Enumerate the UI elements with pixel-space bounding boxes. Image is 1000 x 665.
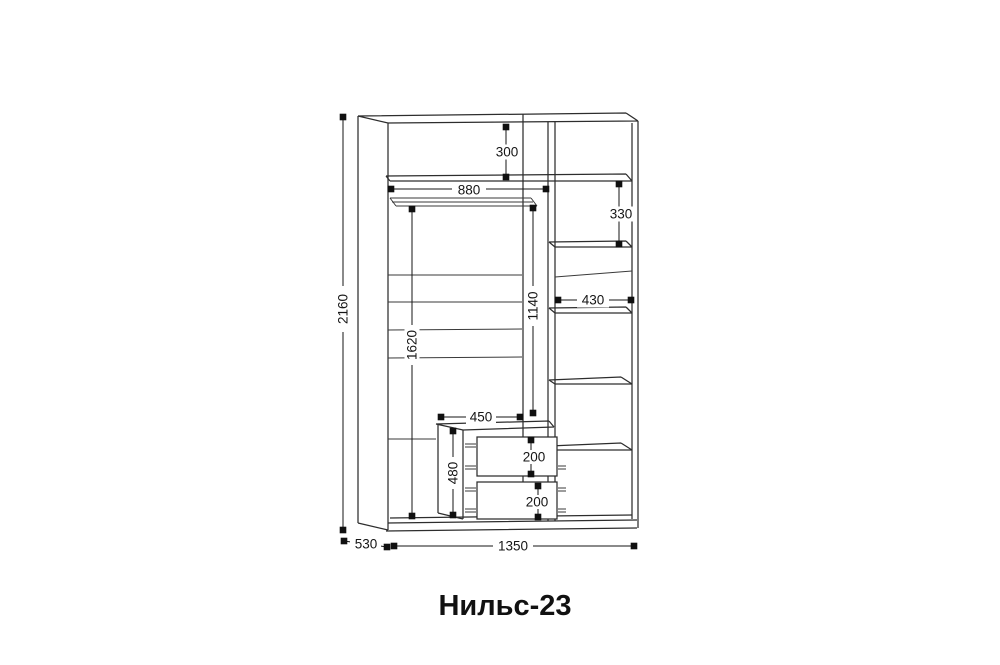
dimension-marker: [517, 414, 524, 421]
dimension-marker: [384, 544, 391, 551]
dim-overall-width: 1350: [391, 539, 638, 554]
dim-drawer-unit-height: 480: [446, 428, 461, 519]
dimension-marker: [530, 410, 537, 417]
dim-rod-to-drawer-height: 1140: [526, 205, 541, 417]
dimension-label: 880: [458, 183, 481, 198]
dimension-label: 330: [610, 207, 633, 222]
dimension-label: 450: [470, 410, 493, 425]
dimension-marker: [340, 114, 347, 121]
dimension-marker: [616, 241, 623, 248]
dimension-marker: [409, 206, 416, 213]
dimension-label: 2160: [336, 294, 351, 324]
dimension-marker: [391, 543, 398, 550]
product-drawing-page: 2160 300 880 330 430: [0, 0, 1000, 665]
hanging-rod: [390, 198, 537, 206]
dimension-marker: [450, 428, 457, 435]
dimension-label: 300: [496, 145, 519, 160]
dimension-marker: [450, 512, 457, 519]
dimension-marker: [631, 543, 638, 550]
dim-overall-depth: 530: [341, 537, 391, 552]
dim-overall-height: 2160: [335, 114, 351, 534]
dimension-marker: [409, 513, 416, 520]
right-side-panel: [632, 121, 638, 528]
right-shelf-2: [549, 307, 632, 313]
dimension-label: 1620: [405, 330, 420, 360]
right-shelf-4: [549, 443, 632, 450]
dimension-marker: [388, 186, 395, 193]
left-side-panel: [358, 116, 388, 530]
top-panel: [358, 113, 638, 123]
dim-top-shelf-drop: 300: [492, 124, 522, 181]
dimension-label: 530: [355, 537, 378, 552]
dimension-marker: [628, 297, 635, 304]
dimension-marker: [528, 437, 535, 444]
product-title: Нильс-23: [438, 590, 571, 622]
dimension-marker: [438, 414, 445, 421]
dimension-marker: [528, 471, 535, 478]
dim-left-bay-width: 880: [388, 183, 550, 198]
dimension-marker: [340, 527, 347, 534]
dimension-marker: [616, 181, 623, 188]
dimension-label: 200: [526, 495, 549, 510]
dimension-label: 480: [446, 462, 461, 485]
dimension-marker: [503, 174, 510, 181]
dimension-label: 1350: [498, 539, 528, 554]
drawer-slides-left: [465, 444, 476, 512]
dimension-marker: [530, 205, 537, 212]
drawer-slides-right: [558, 466, 566, 512]
wardrobe-technical-drawing: 2160 300 880 330 430: [0, 0, 1000, 665]
dimension-marker: [535, 483, 542, 490]
dimension-label: 200: [523, 450, 546, 465]
dimension-label: 1140: [526, 291, 541, 320]
dim-right-bay-width: 430: [555, 293, 635, 308]
dimension-label: 430: [582, 293, 605, 308]
dim-hanging-height: 1620: [405, 206, 420, 520]
dimension-marker: [535, 514, 542, 521]
dimension-marker: [341, 538, 348, 545]
right-shelf-3: [549, 377, 632, 384]
dimension-marker: [555, 297, 562, 304]
dimension-marker: [503, 124, 510, 131]
hanging-rod-lines: [390, 198, 537, 206]
dimension-marker: [543, 186, 550, 193]
